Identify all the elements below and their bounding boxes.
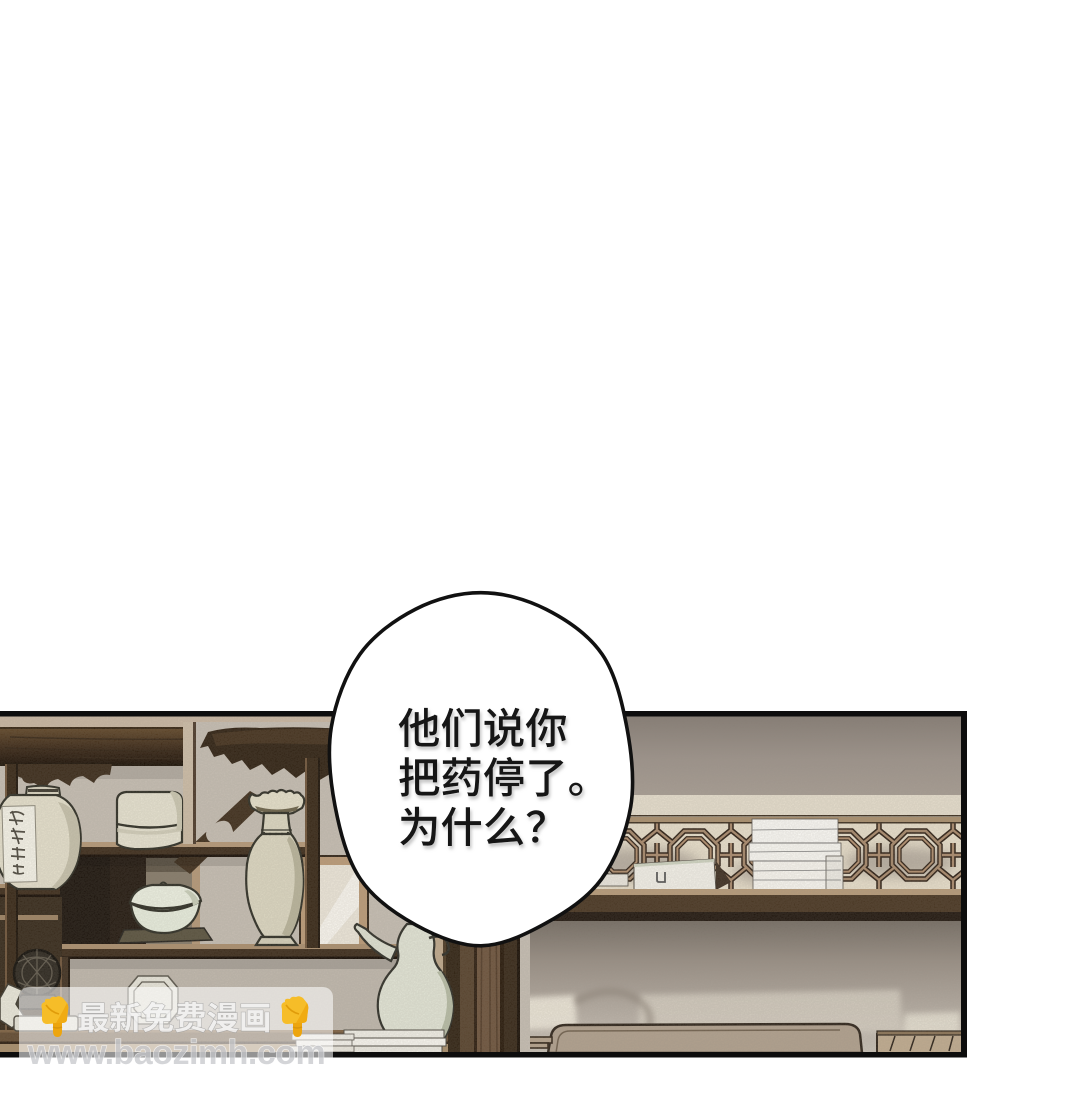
- svg-text:www.baozimh.com: www.baozimh.com: [27, 1034, 325, 1072]
